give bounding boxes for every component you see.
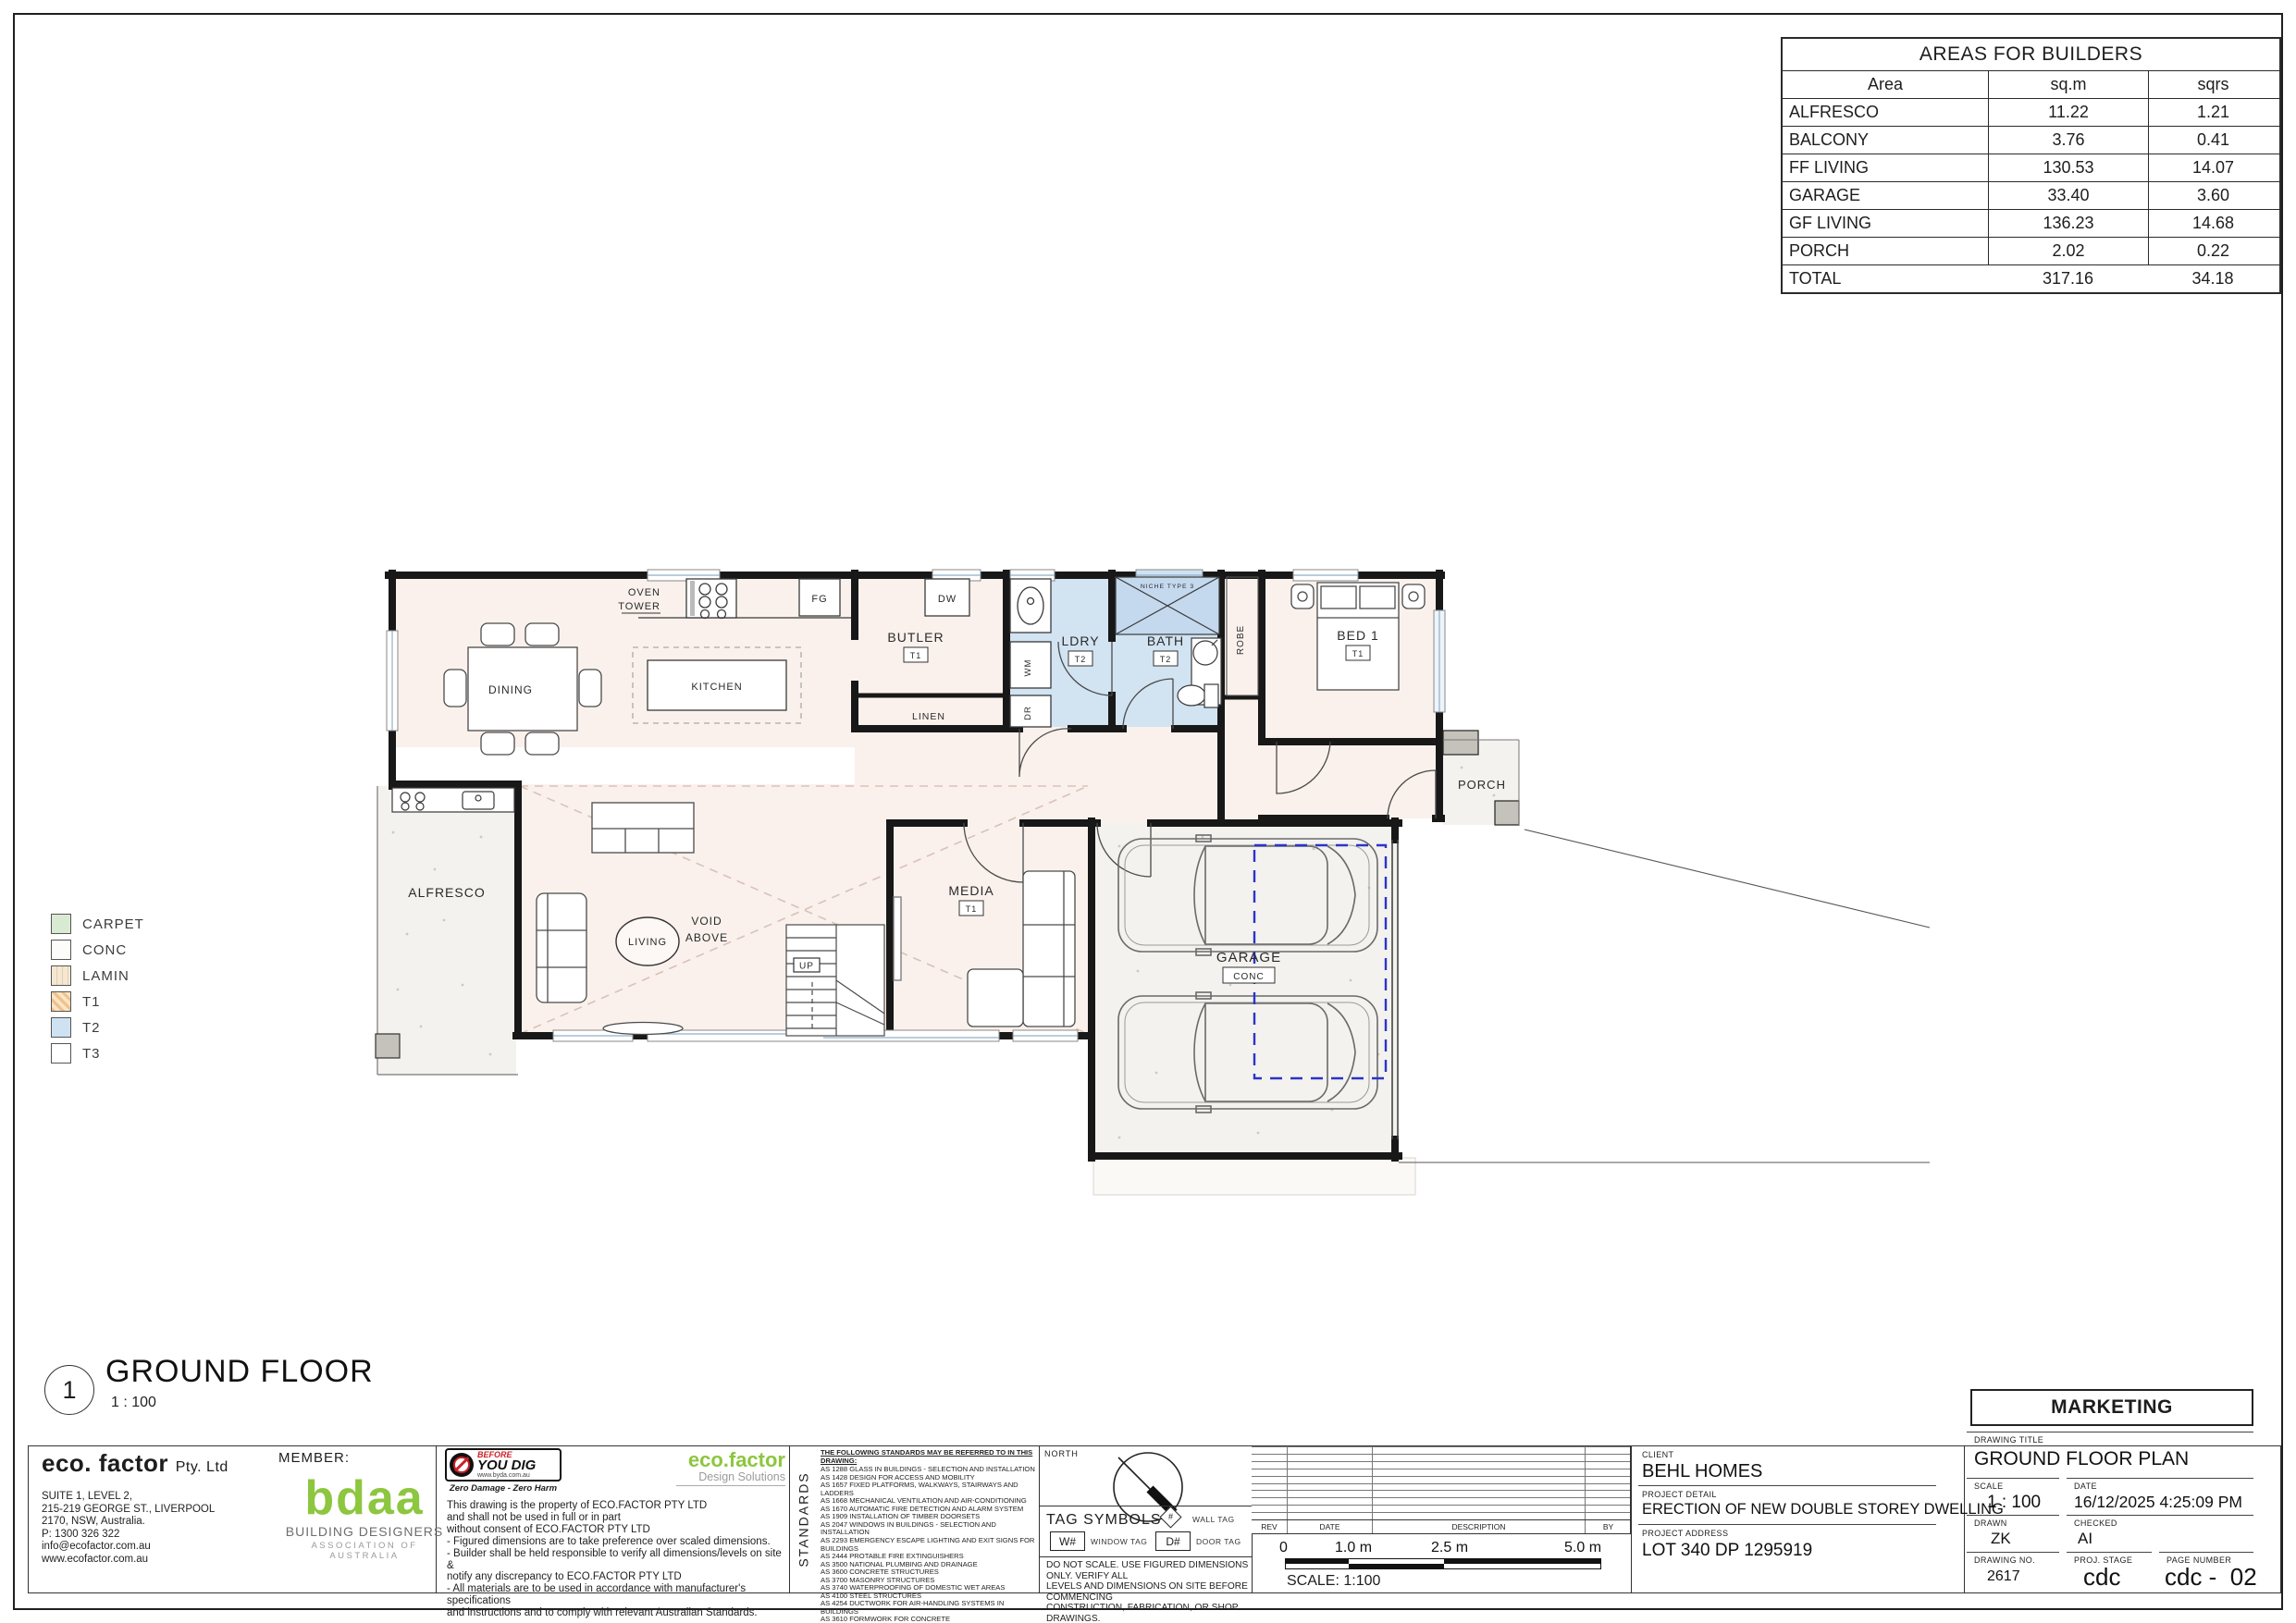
- rev-cell: [1287, 1484, 1372, 1491]
- room-label-porch: PORCH: [1458, 778, 1506, 792]
- project-detail-label: PROJECT DETAIL: [1642, 1490, 1717, 1499]
- bdaa-line2: ASSOCIATION OF AUSTRALIA: [277, 1541, 452, 1561]
- disclaimer-line: - Figured dimensions are to take prefere…: [447, 1536, 791, 1548]
- area-name: PORCH: [1783, 241, 1988, 261]
- window-tag-label: WINDOW TAG: [1091, 1537, 1147, 1546]
- area-sqrs: 3.60: [2148, 182, 2277, 209]
- rev-cell: [1252, 1469, 1287, 1476]
- rev-col-description: DESCRIPTION: [1372, 1520, 1585, 1533]
- bdaa-line1: BUILDING DESIGNERS: [277, 1524, 452, 1539]
- bdaa-logo: bdaa BUILDING DESIGNERS ASSOCIATION OF A…: [277, 1474, 452, 1561]
- total-label: TOTAL: [1783, 269, 1988, 289]
- disclaimer-line: - Builder shall be held responsible to v…: [447, 1548, 791, 1572]
- standards-item: AS 2047 WINDOWS IN BUILDINGS - SELECTION…: [821, 1521, 1035, 1537]
- rev-cell: [1585, 1484, 1631, 1491]
- notes-divider: [1039, 1556, 1252, 1557]
- checked-field-value: AI: [2078, 1530, 2092, 1548]
- revision-row: [1252, 1483, 1630, 1491]
- standards-item: AS 3610 FORMWORK FOR CONCRETE: [821, 1616, 1035, 1623]
- rev-cell: [1252, 1491, 1287, 1497]
- rev-cell: [1287, 1469, 1372, 1476]
- area-name: BALCONY: [1783, 130, 1988, 150]
- rev-cell: [1252, 1498, 1287, 1505]
- tag-ldry-t2: T2: [1075, 655, 1087, 664]
- disclaimer-line: and instructions and to comply with rele…: [447, 1607, 791, 1619]
- rev-cell: [1585, 1477, 1631, 1483]
- rev-cell: [1585, 1462, 1631, 1469]
- plan-scale: 1 : 100: [111, 1395, 156, 1411]
- title-block: eco. factor Pty. Ltd SUITE 1, LEVEL 2,21…: [28, 1445, 2281, 1593]
- company-address-line: 215-219 GEORGE ST., LIVERPOOL: [42, 1504, 215, 1517]
- client-value: BEHL HOMES: [1642, 1461, 1762, 1482]
- total-sqrs: 34.18: [2148, 265, 2277, 292]
- disclaimer-line: without consent of ECO.FACTOR PTY LTD: [447, 1524, 791, 1536]
- rev-cell: [1372, 1484, 1585, 1491]
- scale-field-label: SCALE: [1974, 1482, 2004, 1491]
- rev-cell: [1372, 1491, 1585, 1497]
- note-line: LEVELS AND DIMENSIONS ON SITE BEFORE COM…: [1046, 1581, 1268, 1603]
- rev-cell: [1287, 1498, 1372, 1505]
- wall-tag-text: #: [1164, 1510, 1178, 1524]
- bdaa-wordmark: bdaa: [277, 1474, 452, 1522]
- room-label-alfresco: ALFRESCO: [408, 885, 485, 900]
- do-not-scale-notes: DO NOT SCALE. USE FIGURED DIMENSIONS ONL…: [1046, 1560, 1268, 1623]
- ecofactor-tagline: Design Solutions: [676, 1470, 785, 1486]
- standards-item: AS 2293 EMERGENCY ESCAPE LIGHTING AND EX…: [821, 1537, 1035, 1553]
- label-void: VOID: [691, 915, 722, 928]
- disclaimer-line: notify any discrepancy to ECO.FACTOR PTY…: [447, 1571, 791, 1583]
- company-address-line: www.ecofactor.com.au: [42, 1554, 215, 1567]
- revision-table: REV DATE DESCRIPTION BY: [1252, 1446, 1631, 1534]
- room-label-media: MEDIA: [948, 883, 994, 898]
- legend-label: T1: [82, 994, 101, 1010]
- scalebar-label: SCALE: 1:100: [1287, 1573, 1380, 1590]
- tag-garage-conc: CONC: [1233, 972, 1264, 982]
- scalebar-tick-0: 0: [1279, 1540, 1288, 1556]
- area-sqrs: 14.68: [2148, 210, 2277, 237]
- label-void-above: ABOVE: [685, 931, 728, 944]
- rev-cell: [1372, 1469, 1585, 1476]
- laundry-fittings: [1010, 579, 1051, 727]
- total-sqm: 317.16: [1988, 265, 2148, 292]
- scale-field-value: 1 : 100: [1987, 1493, 2041, 1513]
- rev-cell: [1287, 1447, 1372, 1454]
- drawn-field-divider: [1967, 1515, 2059, 1516]
- area-sqrs: 0.22: [2148, 238, 2277, 264]
- standards-list: THE FOLLOWING STANDARDS MAY BE REFERRED …: [821, 1449, 1035, 1623]
- drawing-no-divider: [1967, 1552, 2059, 1553]
- drawn-field-value: ZK: [1991, 1530, 2011, 1548]
- label-niche: NICHE TYPE 3: [1141, 584, 1194, 590]
- rev-cell: [1372, 1477, 1585, 1483]
- legend-label: T3: [82, 1046, 101, 1062]
- page-divider: [2159, 1552, 2253, 1553]
- rev-col-by: BY: [1585, 1520, 1631, 1533]
- area-sqm: 2.02: [1988, 238, 2148, 264]
- date-field-value: 16/12/2025 4:25:09 PM: [2074, 1493, 2242, 1512]
- disclaimer-line: This drawing is the property of ECO.FACT…: [447, 1500, 791, 1512]
- legend-label: T2: [82, 1020, 101, 1036]
- legend-item: T2: [51, 1014, 144, 1040]
- ecofactor-wordmark: eco.factor: [676, 1450, 785, 1470]
- area-sqm: 136.23: [1988, 210, 2148, 237]
- rev-cell: [1287, 1491, 1372, 1497]
- areas-table-row: BALCONY 3.76 0.41: [1783, 127, 2279, 154]
- area-sqm: 130.53: [1988, 154, 2148, 181]
- rev-cell: [1252, 1455, 1287, 1461]
- project-address-label: PROJECT ADDRESS: [1642, 1529, 1728, 1538]
- legend-item: CARPET: [51, 911, 144, 937]
- project-detail-value: ERECTION OF NEW DOUBLE STOREY DWELLING: [1642, 1501, 2004, 1518]
- drawing-title-divider: [1967, 1432, 2253, 1432]
- standards-vertical-text: STANDARDS: [796, 1471, 811, 1567]
- room-label-bath: BATH: [1147, 633, 1184, 648]
- drawing-no-value: 2617: [1987, 1568, 2020, 1585]
- legend-swatch: [51, 1017, 71, 1038]
- room-label-tower: TOWER: [618, 601, 660, 612]
- tag-butler-t1: T1: [910, 651, 922, 660]
- areas-table-row: GARAGE 33.40 3.60: [1783, 182, 2279, 210]
- project-address-value: LOT 340 DP 1295919: [1642, 1541, 1812, 1561]
- legend-item: CONC: [51, 937, 144, 963]
- footer-divider: [1964, 1446, 1965, 1592]
- disclaimer: This drawing is the property of ECO.FACT…: [447, 1500, 791, 1619]
- area-sqrs: 1.21: [2148, 99, 2277, 126]
- rev-cell: [1585, 1498, 1631, 1505]
- drawn-field-label: DRAWN: [1974, 1518, 2007, 1528]
- areas-table-row: PORCH 2.02 0.22: [1783, 238, 2279, 264]
- project-address-divider: [1638, 1524, 1936, 1525]
- no-dig-icon: [450, 1453, 474, 1477]
- legend-item: T3: [51, 1040, 144, 1066]
- areas-col-area: Area: [1783, 75, 1988, 94]
- legend-swatch: [51, 940, 71, 960]
- drawing-title-value: GROUND FLOOR PLAN: [1974, 1448, 2189, 1470]
- company-suffix: Pty. Ltd: [176, 1459, 228, 1475]
- room-label-kitchen: KITCHEN: [691, 682, 742, 693]
- rev-cell: [1585, 1455, 1631, 1461]
- ecofactor-logo: eco.factor Design Solutions: [676, 1450, 785, 1486]
- revision-row: [1252, 1512, 1630, 1519]
- areas-col-sqrs: sqrs: [2148, 71, 2277, 98]
- scale-field-divider: [1967, 1478, 2059, 1479]
- label-washing-machine: WM: [1023, 659, 1033, 677]
- area-name: GARAGE: [1783, 186, 1988, 205]
- room-label-dining: DINING: [488, 683, 533, 696]
- room-label-butler: BUTLER: [887, 630, 944, 645]
- room-label-linen: LINEN: [912, 711, 945, 722]
- drawing-title-label: DRAWING TITLE: [1974, 1435, 2043, 1445]
- legend-label: CONC: [82, 942, 127, 958]
- legend-swatch: [51, 965, 71, 986]
- rev-cell: [1252, 1477, 1287, 1483]
- rev-cell: [1372, 1462, 1585, 1469]
- plan-title: GROUND FLOOR: [105, 1354, 374, 1390]
- page-number-value: cdc - 02: [2165, 1563, 2257, 1592]
- client-divider: [1638, 1485, 1936, 1486]
- areas-table-header: Area sq.m sqrs: [1783, 71, 2279, 99]
- company-address-line: P: 1300 326 322: [42, 1529, 215, 1542]
- area-name: GF LIVING: [1783, 214, 1988, 233]
- rev-cell: [1585, 1469, 1631, 1476]
- scalebar-tick-2: 2.5 m: [1431, 1540, 1468, 1556]
- scalebar-tick-1: 1.0 m: [1335, 1540, 1372, 1556]
- byd-tagline: Zero Damage - Zero Harm: [445, 1483, 562, 1494]
- note-line: CONSTRUCTION, FABRICATION, OR SHOP DRAWI…: [1046, 1603, 1268, 1623]
- tag-bed1-t1: T1: [1352, 649, 1364, 658]
- site-lines: [1399, 830, 1930, 1162]
- revision-row: [1252, 1454, 1630, 1461]
- plan-number-bubble: 1: [44, 1365, 94, 1415]
- byd-url: www.byda.com.au: [477, 1472, 536, 1480]
- area-sqm: 33.40: [1988, 182, 2148, 209]
- rev-cell: [1372, 1447, 1585, 1454]
- stairs: [786, 925, 884, 1036]
- footer-divider: [1039, 1446, 1040, 1592]
- tag-media-t1: T1: [966, 904, 978, 914]
- window-tag-text: W#: [1059, 1535, 1076, 1548]
- window-tag-symbol: W#: [1050, 1531, 1085, 1551]
- drawing-sheet: AREAS FOR BUILDERS Area sq.m sqrs ALFRES…: [0, 0, 2296, 1623]
- byd-you-dig: YOU DIG: [477, 1459, 536, 1472]
- plan-number: 1: [62, 1376, 76, 1405]
- stage-value: cdc: [2083, 1563, 2120, 1592]
- rev-cell: [1287, 1455, 1372, 1461]
- areas-table-title: AREAS FOR BUILDERS: [1783, 39, 2279, 71]
- legend-label: LAMIN: [82, 968, 130, 984]
- rev-col-date: DATE: [1287, 1520, 1372, 1533]
- company-name-text: eco. factor: [42, 1449, 168, 1477]
- label-stairs-up: UP: [799, 962, 814, 972]
- date-field-divider: [2067, 1478, 2253, 1479]
- rev-cell: [1252, 1447, 1287, 1454]
- floor-finish-legend: CARPET CONC LAMIN T1 T2: [51, 911, 144, 1066]
- revision-row: [1252, 1505, 1630, 1512]
- legend-item: T1: [51, 989, 144, 1014]
- revision-row: [1252, 1476, 1630, 1483]
- area-name: FF LIVING: [1783, 158, 1988, 178]
- room-label-oven: OVEN: [628, 587, 660, 598]
- rev-cell: [1585, 1506, 1631, 1512]
- company-address: SUITE 1, LEVEL 2,215-219 GEORGE ST., LIV…: [42, 1491, 215, 1566]
- area-sqrs: 0.41: [2148, 127, 2277, 154]
- north-label: NORTH: [1044, 1449, 1079, 1458]
- company-name: eco. factor Pty. Ltd: [42, 1449, 228, 1478]
- legend-swatch: [51, 991, 71, 1012]
- standards-item: AS 4254 DUCTWORK FOR AIR-HANDLING SYSTEM…: [821, 1600, 1035, 1616]
- areas-table-body: ALFRESCO 11.22 1.21 BALCONY 3.76 0.41 FF…: [1783, 99, 2279, 264]
- rev-cell: [1372, 1455, 1585, 1461]
- legend-swatch: [51, 914, 71, 934]
- area-sqrs: 14.07: [2148, 154, 2277, 181]
- revision-row: [1252, 1446, 1630, 1454]
- rev-cell: [1252, 1484, 1287, 1491]
- disclaimer-line: and shall not be used in full or in part: [447, 1512, 791, 1524]
- rev-cell: [1372, 1498, 1585, 1505]
- room-label-bed1: BED 1: [1337, 628, 1378, 643]
- room-label-garage: GARAGE: [1216, 950, 1281, 965]
- door-tag-label: DOOR TAG: [1196, 1537, 1241, 1546]
- revision-row: [1252, 1461, 1630, 1469]
- standards-vertical-label: STANDARDS: [791, 1446, 817, 1592]
- areas-for-builders-table: AREAS FOR BUILDERS Area sq.m sqrs ALFRES…: [1781, 37, 2281, 294]
- scalebar-tick-3: 5.0 m: [1564, 1540, 1601, 1556]
- rev-cell: [1252, 1462, 1287, 1469]
- drawing-no-label: DRAWING NO.: [1974, 1555, 2035, 1565]
- room-label-living: LIVING: [628, 937, 667, 948]
- disclaimer-line: - All materials are to be used in accord…: [447, 1583, 791, 1607]
- standards-header: THE FOLLOWING STANDARDS MAY BE REFERRED …: [821, 1449, 1035, 1465]
- areas-table-row: ALFRESCO 11.22 1.21: [1783, 99, 2279, 127]
- areas-table-row: GF LIVING 136.23 14.68: [1783, 210, 2279, 238]
- standards-item: AS 1657 FIXED PLATFORMS, WALKWAYS, STAIR…: [821, 1482, 1035, 1497]
- stage-divider: [2067, 1552, 2152, 1553]
- door-tag-text: D#: [1166, 1535, 1179, 1548]
- rev-cell: [1287, 1477, 1372, 1483]
- rev-cell: [1585, 1491, 1631, 1497]
- floor-plan-drawing: OVEN TOWER FG DW BUTLER WM DR LDRY BATH …: [361, 546, 1943, 1235]
- area-sqm: 3.76: [1988, 127, 2148, 154]
- company-address-line: 2170, NSW, Australia.: [42, 1516, 215, 1529]
- tag-bath-t2: T2: [1160, 655, 1172, 664]
- room-label-robe: ROBE: [1236, 625, 1246, 655]
- tag-symbols-title: TAG SYMBOLS: [1046, 1512, 1162, 1529]
- marketing-stamp: MARKETING: [1970, 1389, 2253, 1426]
- rev-cell: [1372, 1506, 1585, 1512]
- member-label: MEMBER:: [278, 1450, 350, 1466]
- revision-row: [1252, 1497, 1630, 1505]
- label-fridge: FG: [811, 594, 827, 605]
- door-tag-symbol: D#: [1155, 1531, 1191, 1551]
- areas-col-sqm: sq.m: [1988, 71, 2148, 98]
- room-label-laundry: LDRY: [1061, 633, 1099, 648]
- revision-row: [1252, 1490, 1630, 1497]
- revision-header: REV DATE DESCRIPTION BY: [1252, 1519, 1630, 1533]
- area-name: ALFRESCO: [1783, 103, 1988, 122]
- before-you-dig-logo: BEFORE YOU DIG www.byda.com.au: [445, 1448, 562, 1482]
- wall-tag-label: WALL TAG: [1192, 1515, 1235, 1524]
- checked-field-divider: [2067, 1515, 2253, 1516]
- legend-swatch: [51, 1043, 71, 1064]
- revision-empty-rows: [1252, 1446, 1630, 1519]
- areas-table-row: FF LIVING 130.53 14.07: [1783, 154, 2279, 182]
- footer-divider: [1631, 1446, 1632, 1592]
- rev-cell: [1287, 1506, 1372, 1512]
- date-field-label: DATE: [2074, 1482, 2097, 1491]
- legend-item: LAMIN: [51, 963, 144, 989]
- area-sqm: 11.22: [1988, 99, 2148, 126]
- rev-cell: [1585, 1447, 1631, 1454]
- rev-cell: [1287, 1462, 1372, 1469]
- company-address-line: info@ecofactor.com.au: [42, 1541, 215, 1554]
- label-dishwasher: DW: [938, 594, 957, 605]
- rev-cell: [1252, 1506, 1287, 1512]
- company-address-line: SUITE 1, LEVEL 2,: [42, 1491, 215, 1504]
- tag-section-divider: [1039, 1506, 1252, 1506]
- label-dryer: DR: [1023, 706, 1033, 720]
- revision-row: [1252, 1469, 1630, 1476]
- legend-label: CARPET: [82, 916, 144, 932]
- note-line: DO NOT SCALE. USE FIGURED DIMENSIONS ONL…: [1046, 1560, 1268, 1581]
- standards-items: AS 1288 GLASS IN BUILDINGS - SELECTION A…: [821, 1466, 1035, 1623]
- client-label: CLIENT: [1642, 1450, 1673, 1459]
- scale-bar: [1285, 1558, 1601, 1569]
- checked-field-label: CHECKED: [2074, 1518, 2117, 1528]
- rev-col-rev: REV: [1252, 1520, 1287, 1533]
- areas-table-total-row: TOTAL 317.16 34.18: [1783, 264, 2279, 292]
